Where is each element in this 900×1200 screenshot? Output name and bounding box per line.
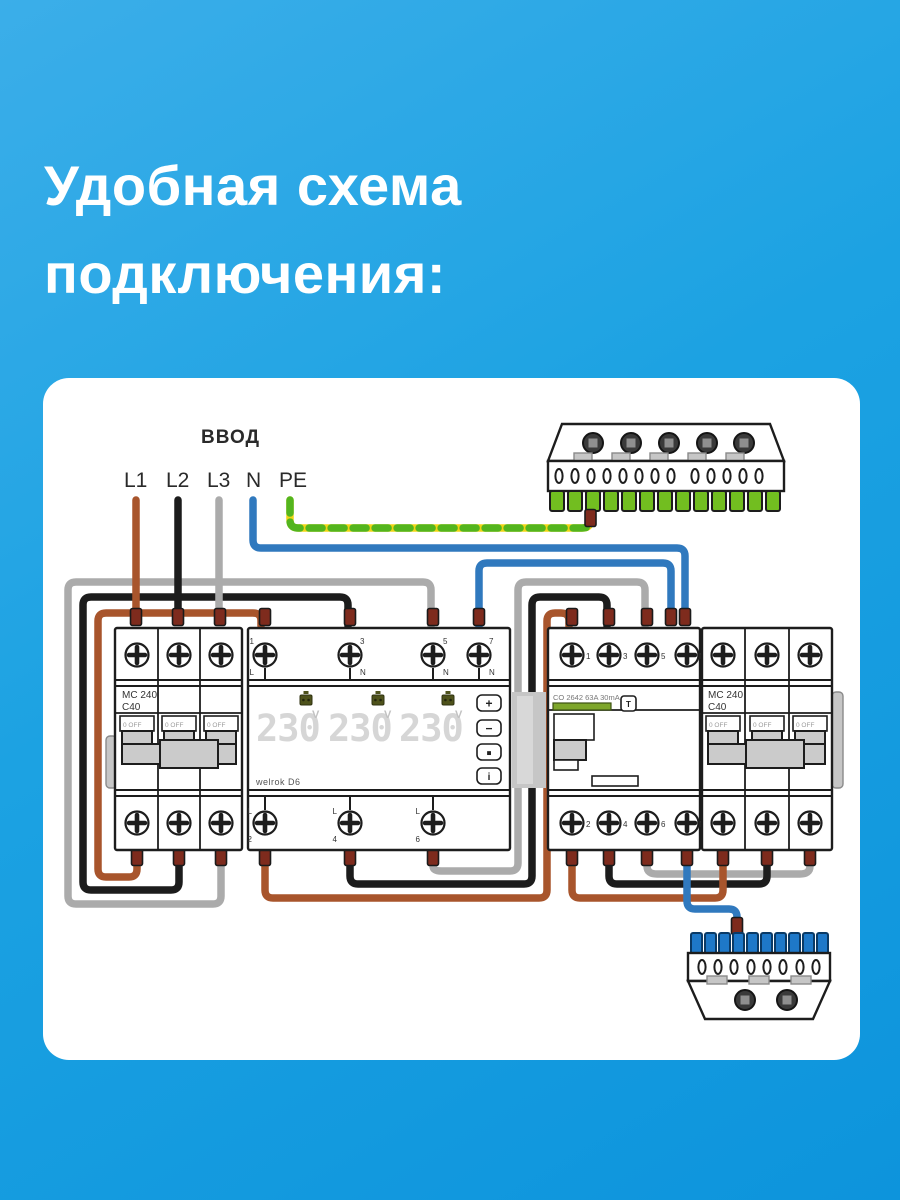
breaker-right-handle-tab	[832, 692, 843, 788]
phase-label-l3: L3	[207, 469, 230, 492]
svg-text:0 OFF: 0 OFF	[709, 722, 727, 729]
svg-text:2: 2	[586, 820, 591, 829]
svg-text:0 OFF: 0 OFF	[796, 722, 814, 729]
page: { "title": { "line1": "Удобная схема", "…	[0, 0, 900, 1200]
svg-text:0 OFF: 0 OFF	[753, 722, 771, 729]
relay-brand-label: welrok D6	[255, 777, 301, 787]
page-title: Удобная схема подключения:	[44, 142, 462, 318]
breaker-left-model: MC 240	[122, 690, 157, 701]
neutral-bus-screw-icon	[777, 990, 797, 1010]
svg-text:L: L	[416, 807, 421, 816]
rcd-indicator-bar	[553, 703, 611, 710]
svg-text:N: N	[360, 668, 366, 677]
svg-text:6: 6	[661, 820, 666, 829]
pe-bus-screw-icon	[621, 433, 641, 453]
breaker-right: MC 240 C40 0 OFF 0 OFF 0 OFF	[702, 628, 843, 850]
breaker-left-rating: C40	[122, 702, 141, 713]
diagram-panel: ВВОД L1 L2 L3 N PE	[43, 378, 860, 1060]
voltage-display-1: 230	[256, 707, 320, 750]
svg-text:V: V	[312, 709, 320, 721]
title-line-2: подключения:	[44, 230, 462, 318]
rcd-toggle	[554, 714, 594, 740]
phase-label-l1: L1	[124, 469, 147, 492]
svg-text:4: 4	[333, 835, 338, 844]
voltage-display-3: 230	[399, 707, 463, 750]
pe-bus-screw-icon	[659, 433, 679, 453]
rcd-model-label: CO 2642 63A 30mA	[553, 693, 620, 702]
svg-text:V: V	[455, 709, 463, 721]
svg-text:1: 1	[250, 637, 255, 646]
voltage-relay: 1 L 3 N 5 N 7 N L 2 L 4 L 6 230 230 230 …	[248, 628, 546, 850]
svg-text:+: +	[485, 697, 492, 711]
svg-text:L: L	[333, 807, 338, 816]
breaker-left-toggle	[122, 731, 152, 745]
svg-text:2: 2	[248, 835, 253, 844]
rcd: 1 3 5 N 2 4 6 N CO 2642 63A 30mA T	[548, 628, 705, 850]
breaker-right-toggle	[708, 731, 738, 745]
wiring-diagram: ВВОД L1 L2 L3 N PE	[43, 378, 860, 1060]
breaker-right-rating: C40	[708, 702, 727, 713]
svg-text:3: 3	[360, 637, 365, 646]
pe-bus-screw-icon	[697, 433, 717, 453]
neutral-bus-teeth	[691, 933, 828, 954]
pe-bus-screw-icon	[583, 433, 603, 453]
svg-text:0 OFF: 0 OFF	[123, 722, 141, 729]
svg-text:3: 3	[623, 652, 628, 661]
svg-text:L: L	[250, 668, 255, 677]
phase-label-pe: PE	[279, 469, 307, 492]
voltage-display-2: 230	[328, 707, 392, 750]
wire-pe-input-stripe	[290, 500, 590, 528]
svg-text:5: 5	[661, 652, 666, 661]
svg-text:0 OFF: 0 OFF	[165, 722, 183, 729]
svg-text:−: −	[485, 722, 492, 736]
pe-bus-teeth	[550, 491, 780, 511]
title-line-1: Удобная схема	[44, 142, 462, 230]
svg-text:7: 7	[489, 637, 494, 646]
wire-rcd-out-l3	[647, 866, 810, 874]
breaker-left: MC 240 C40 0 OFF 0 OFF 0 OFF	[106, 628, 242, 850]
pe-bus	[548, 424, 784, 511]
input-label: ВВОД	[201, 427, 260, 448]
neutral-bus-screw-icon	[735, 990, 755, 1010]
svg-text:V: V	[384, 709, 392, 721]
svg-text:T: T	[626, 700, 631, 709]
svg-text:N: N	[489, 668, 495, 677]
svg-text:6: 6	[416, 835, 421, 844]
svg-text:L: L	[248, 807, 253, 816]
pe-bus-screw-icon	[734, 433, 754, 453]
phase-label-n: N	[246, 469, 261, 492]
phase-label-l2: L2	[166, 469, 189, 492]
svg-text:5: 5	[443, 637, 448, 646]
svg-text:0 OFF: 0 OFF	[207, 722, 225, 729]
svg-text:4: 4	[623, 820, 628, 829]
breaker-right-model: MC 240	[708, 690, 743, 701]
svg-text:■: ■	[487, 749, 492, 758]
wire-pe-input-base	[290, 500, 590, 528]
svg-text:1: 1	[586, 652, 591, 661]
svg-text:N: N	[443, 668, 449, 677]
svg-text:i: i	[488, 772, 491, 783]
neutral-bus	[688, 933, 830, 1019]
